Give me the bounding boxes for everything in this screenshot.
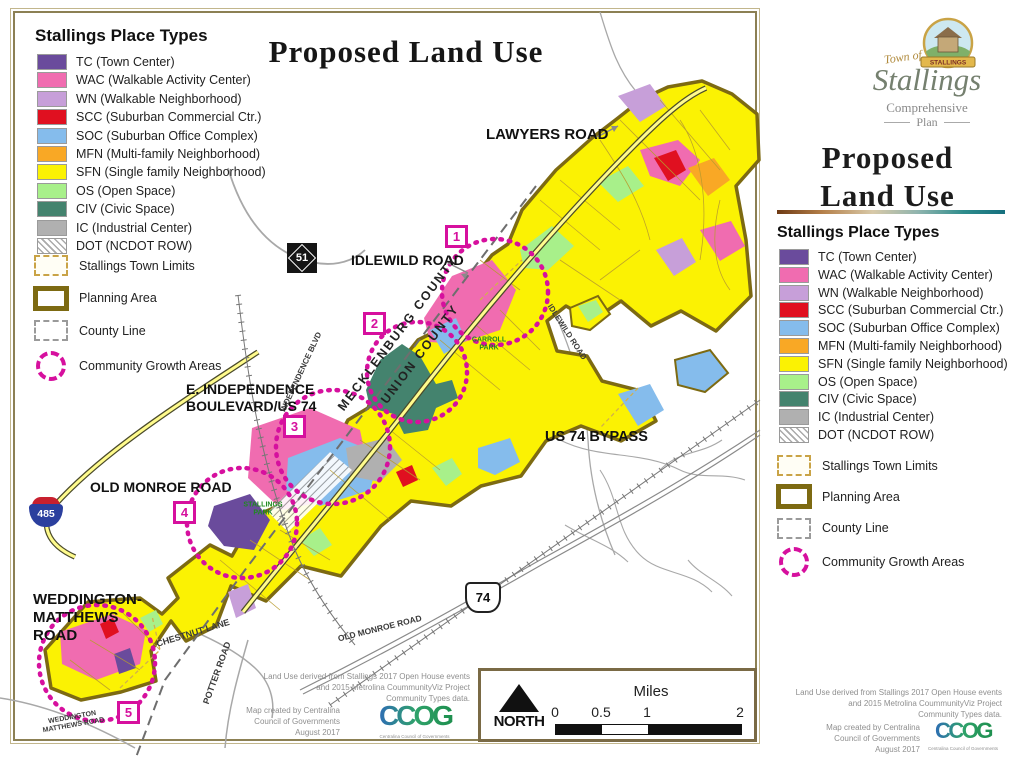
attribution-line: and 2015 Metrolina CoummunityViz Project [770, 699, 1002, 710]
logo-comprehensive: Comprehensive [862, 100, 992, 116]
legend-swatch [779, 409, 809, 425]
legend-boundary-label: Stallings Town Limits [822, 459, 938, 473]
nc51-shield: 51 [287, 243, 317, 273]
legend-boundary-symbol [34, 320, 68, 341]
park-label-stallings: STALLINGS PARK [243, 501, 282, 516]
legend-swatch [37, 91, 67, 107]
legend-item: MFN (Multi-family Neighborhood) [779, 338, 1008, 354]
legend-item-label: MFN (Multi-family Neighborhood) [818, 339, 1002, 353]
legend-item-label: IC (Industrial Center) [818, 410, 934, 424]
growth-marker-4: 4 [173, 501, 196, 524]
legend-boundary-item: Stallings Town Limits [33, 255, 221, 276]
sidebar-legend-boundaries: Stallings Town Limits Planning Area Coun… [776, 455, 964, 577]
label-old-monroe-road: OLD MONROE ROAD [90, 479, 232, 496]
legend-swatch [37, 146, 67, 162]
attribution-line: August 2017 [770, 745, 920, 756]
legend-item-label: OS (Open Space) [76, 184, 175, 198]
legend-item: CIV (Civic Space) [779, 391, 1008, 407]
legend-item-label: SCC (Suburban Commercial Ctr.) [76, 110, 261, 124]
legend-item-label: TC (Town Center) [818, 250, 917, 264]
legend-item-label: WAC (Walkable Activity Center) [76, 73, 251, 87]
sidebar-attribution-credit: Map created by CentralinaCouncil of Gove… [770, 723, 920, 755]
legend-item-label: WAC (Walkable Activity Center) [818, 268, 993, 282]
us74-shield: 74 [465, 582, 501, 613]
legend-item: SCC (Suburban Commercial Ctr.) [37, 109, 266, 125]
legend-boundary-symbol [776, 484, 812, 509]
legend-boundary-item: Planning Area [33, 286, 221, 311]
legend-boundary-label: Planning Area [79, 291, 157, 305]
legend-item: WAC (Walkable Activity Center) [779, 267, 1008, 283]
label-us74-bypass: US 74 BYPASS [545, 429, 648, 446]
attribution-line: Map created by Centralina [770, 723, 920, 734]
ccog-logo: CCOG Centralina Council of Governments [362, 700, 467, 739]
sidebar-attribution-source: Land Use derived from Stallings 2017 Ope… [770, 688, 1002, 720]
sidebar-legend-place-types: TC (Town Center) WAC (Walkable Activity … [779, 249, 1008, 443]
map-legend-title: Stallings Place Types [35, 26, 208, 46]
sidebar-ccog-logo: CCOG Centralina Council of Governments [922, 718, 1004, 751]
legend-boundary-item: County Line [33, 320, 221, 341]
legend-boundary-item: Community Growth Areas [33, 351, 221, 381]
proposed-land-use-map-sheet: { "title": "Proposed Land Use", "legend"… [0, 0, 1010, 778]
legend-item: IC (Industrial Center) [37, 220, 266, 236]
legend-boundary-item: Community Growth Areas [776, 547, 964, 577]
legend-item: WAC (Walkable Activity Center) [37, 72, 266, 88]
legend-item: SOC (Suburban Office Complex) [779, 320, 1008, 336]
legend-item: TC (Town Center) [779, 249, 1008, 265]
legend-swatch [37, 238, 67, 254]
legend-item: IC (Industrial Center) [779, 409, 1008, 425]
legend-swatch [779, 302, 809, 318]
legend-item: CIV (Civic Space) [37, 201, 266, 217]
legend-boundary-label: Community Growth Areas [822, 555, 964, 569]
legend-item-label: MFN (Multi-family Neighborhood) [76, 147, 260, 161]
i485-shield: 485 [29, 497, 63, 527]
legend-item-label: CIV (Civic Space) [76, 202, 175, 216]
legend-item: DOT (NCDOT ROW) [37, 238, 266, 254]
legend-item: MFN (Multi-family Neighborhood) [37, 146, 266, 162]
north-arrow-icon [499, 684, 539, 712]
legend-item: OS (Open Space) [37, 183, 266, 199]
legend-item: TC (Town Center) [37, 54, 266, 70]
scale-bar [555, 724, 742, 735]
legend-swatch [779, 391, 809, 407]
attribution-line: Council of Governments [770, 734, 920, 745]
legend-swatch [37, 54, 67, 70]
legend-boundary-item: Stallings Town Limits [776, 455, 964, 476]
legend-boundary-symbol [777, 455, 811, 476]
label-lawyers-road: LAWYERS ROAD [486, 126, 609, 144]
legend-swatch [37, 128, 67, 144]
attribution-line: August 2017 [230, 728, 340, 739]
legend-swatch [37, 109, 67, 125]
scale-tick-1: 1 [632, 704, 662, 720]
legend-item: WN (Walkable Neighborhood) [779, 285, 1008, 301]
legend-item-label: WN (Walkable Neighborhood) [818, 286, 984, 300]
park-label-carroll: CARROLL PARK [472, 336, 506, 351]
legend-item-label: OS (Open Space) [818, 375, 917, 389]
attribution-line: Council of Governments [230, 717, 340, 728]
legend-boundary-symbol [779, 547, 809, 577]
legend-swatch [779, 320, 809, 336]
scale-tick-05: 0.5 [586, 704, 616, 720]
legend-swatch [37, 72, 67, 88]
legend-item-label: SOC (Suburban Office Complex) [76, 129, 258, 143]
growth-marker-2: 2 [363, 312, 386, 335]
legend-item: OS (Open Space) [779, 374, 1008, 390]
attribution-line: Land Use derived from Stallings 2017 Ope… [770, 688, 1002, 699]
legend-item-label: DOT (NCDOT ROW) [76, 239, 192, 253]
legend-boundary-label: Community Growth Areas [79, 359, 221, 373]
ccog-caption: Centralina Council of Governments [362, 734, 467, 739]
logo-stallings: Stallings [852, 62, 1002, 98]
legend-swatch [779, 338, 809, 354]
legend-boundary-symbol [777, 518, 811, 539]
legend-item-label: IC (Industrial Center) [76, 221, 192, 235]
legend-swatch [37, 164, 67, 180]
legend-boundary-label: County Line [79, 324, 146, 338]
svg-text:CCOG: CCOG [379, 700, 453, 731]
legend-swatch [37, 183, 67, 199]
legend-item-label: SFN (Single family Neighborhood) [818, 357, 1008, 371]
legend-item: SOC (Suburban Office Complex) [37, 128, 266, 144]
legend-swatch [37, 201, 67, 217]
legend-item-label: CIV (Civic Space) [818, 392, 917, 406]
ccog-caption: Centralina Council of Governments [922, 746, 1004, 751]
plan-dash-right [944, 122, 970, 123]
map-attribution-credit: Map created by CentralinaCouncil of Gove… [230, 706, 340, 738]
scale-units-label: Miles [611, 683, 691, 700]
legend-item: SFN (Single family Neighborhood) [779, 356, 1008, 372]
scale-tick-0: 0 [540, 704, 570, 720]
legend-item-label: TC (Town Center) [76, 55, 175, 69]
logo-plan: Plan [862, 115, 992, 130]
legend-boundary-symbol [36, 351, 66, 381]
attribution-line: Land Use derived from Stallings 2017 Ope… [250, 672, 470, 683]
map-legend-boundaries: Stallings Town Limits Planning Area Coun… [33, 255, 221, 381]
legend-boundary-label: County Line [822, 521, 889, 535]
legend-boundary-symbol [33, 286, 69, 311]
legend-swatch [37, 220, 67, 236]
attribution-line: Map created by Centralina [230, 706, 340, 717]
legend-swatch [779, 285, 809, 301]
legend-swatch [779, 356, 809, 372]
title-gradient-rule [777, 210, 1005, 214]
legend-boundary-item: Planning Area [776, 484, 964, 509]
scale-tick-2: 2 [725, 704, 755, 720]
plan-dash-left [884, 122, 910, 123]
label-weddington-matthews: WEDDINGTON- MATTHEWS ROAD [33, 591, 142, 645]
legend-swatch [779, 249, 809, 265]
legend-boundary-label: Planning Area [822, 490, 900, 504]
sidebar-legend-title: Stallings Place Types [777, 224, 939, 242]
scale-bar-box: NORTH Miles 0 0.5 1 2 [478, 668, 757, 742]
svg-text:CCOG: CCOG [935, 718, 992, 743]
legend-item-label: DOT (NCDOT ROW) [818, 428, 934, 442]
growth-marker-3: 3 [283, 415, 306, 438]
legend-boundary-item: County Line [776, 518, 964, 539]
growth-marker-1: 1 [445, 225, 468, 248]
map-title: Proposed Land Use [250, 34, 562, 70]
sidebar-title-line1: Proposed [770, 140, 1005, 176]
legend-boundary-symbol [34, 255, 68, 276]
sidebar-title-line2: Land Use [770, 178, 1005, 214]
legend-item-label: SOC (Suburban Office Complex) [818, 321, 1000, 335]
legend-boundary-label: Stallings Town Limits [79, 259, 195, 273]
map-legend-place-types: TC (Town Center) WAC (Walkable Activity … [37, 54, 266, 254]
legend-item-label: WN (Walkable Neighborhood) [76, 92, 242, 106]
legend-item: WN (Walkable Neighborhood) [37, 91, 266, 107]
legend-swatch [779, 427, 809, 443]
legend-item: DOT (NCDOT ROW) [779, 427, 1008, 443]
legend-item-label: SFN (Single family Neighborhood) [76, 165, 266, 179]
legend-item: SFN (Single family Neighborhood) [37, 164, 266, 180]
legend-item: SCC (Suburban Commercial Ctr.) [779, 302, 1008, 318]
legend-swatch [779, 267, 809, 283]
legend-swatch [779, 374, 809, 390]
attribution-line: and 2015 Metrolina CoummunityViz Project [250, 683, 470, 694]
growth-marker-5: 5 [117, 701, 140, 724]
legend-item-label: SCC (Suburban Commercial Ctr.) [818, 303, 1003, 317]
